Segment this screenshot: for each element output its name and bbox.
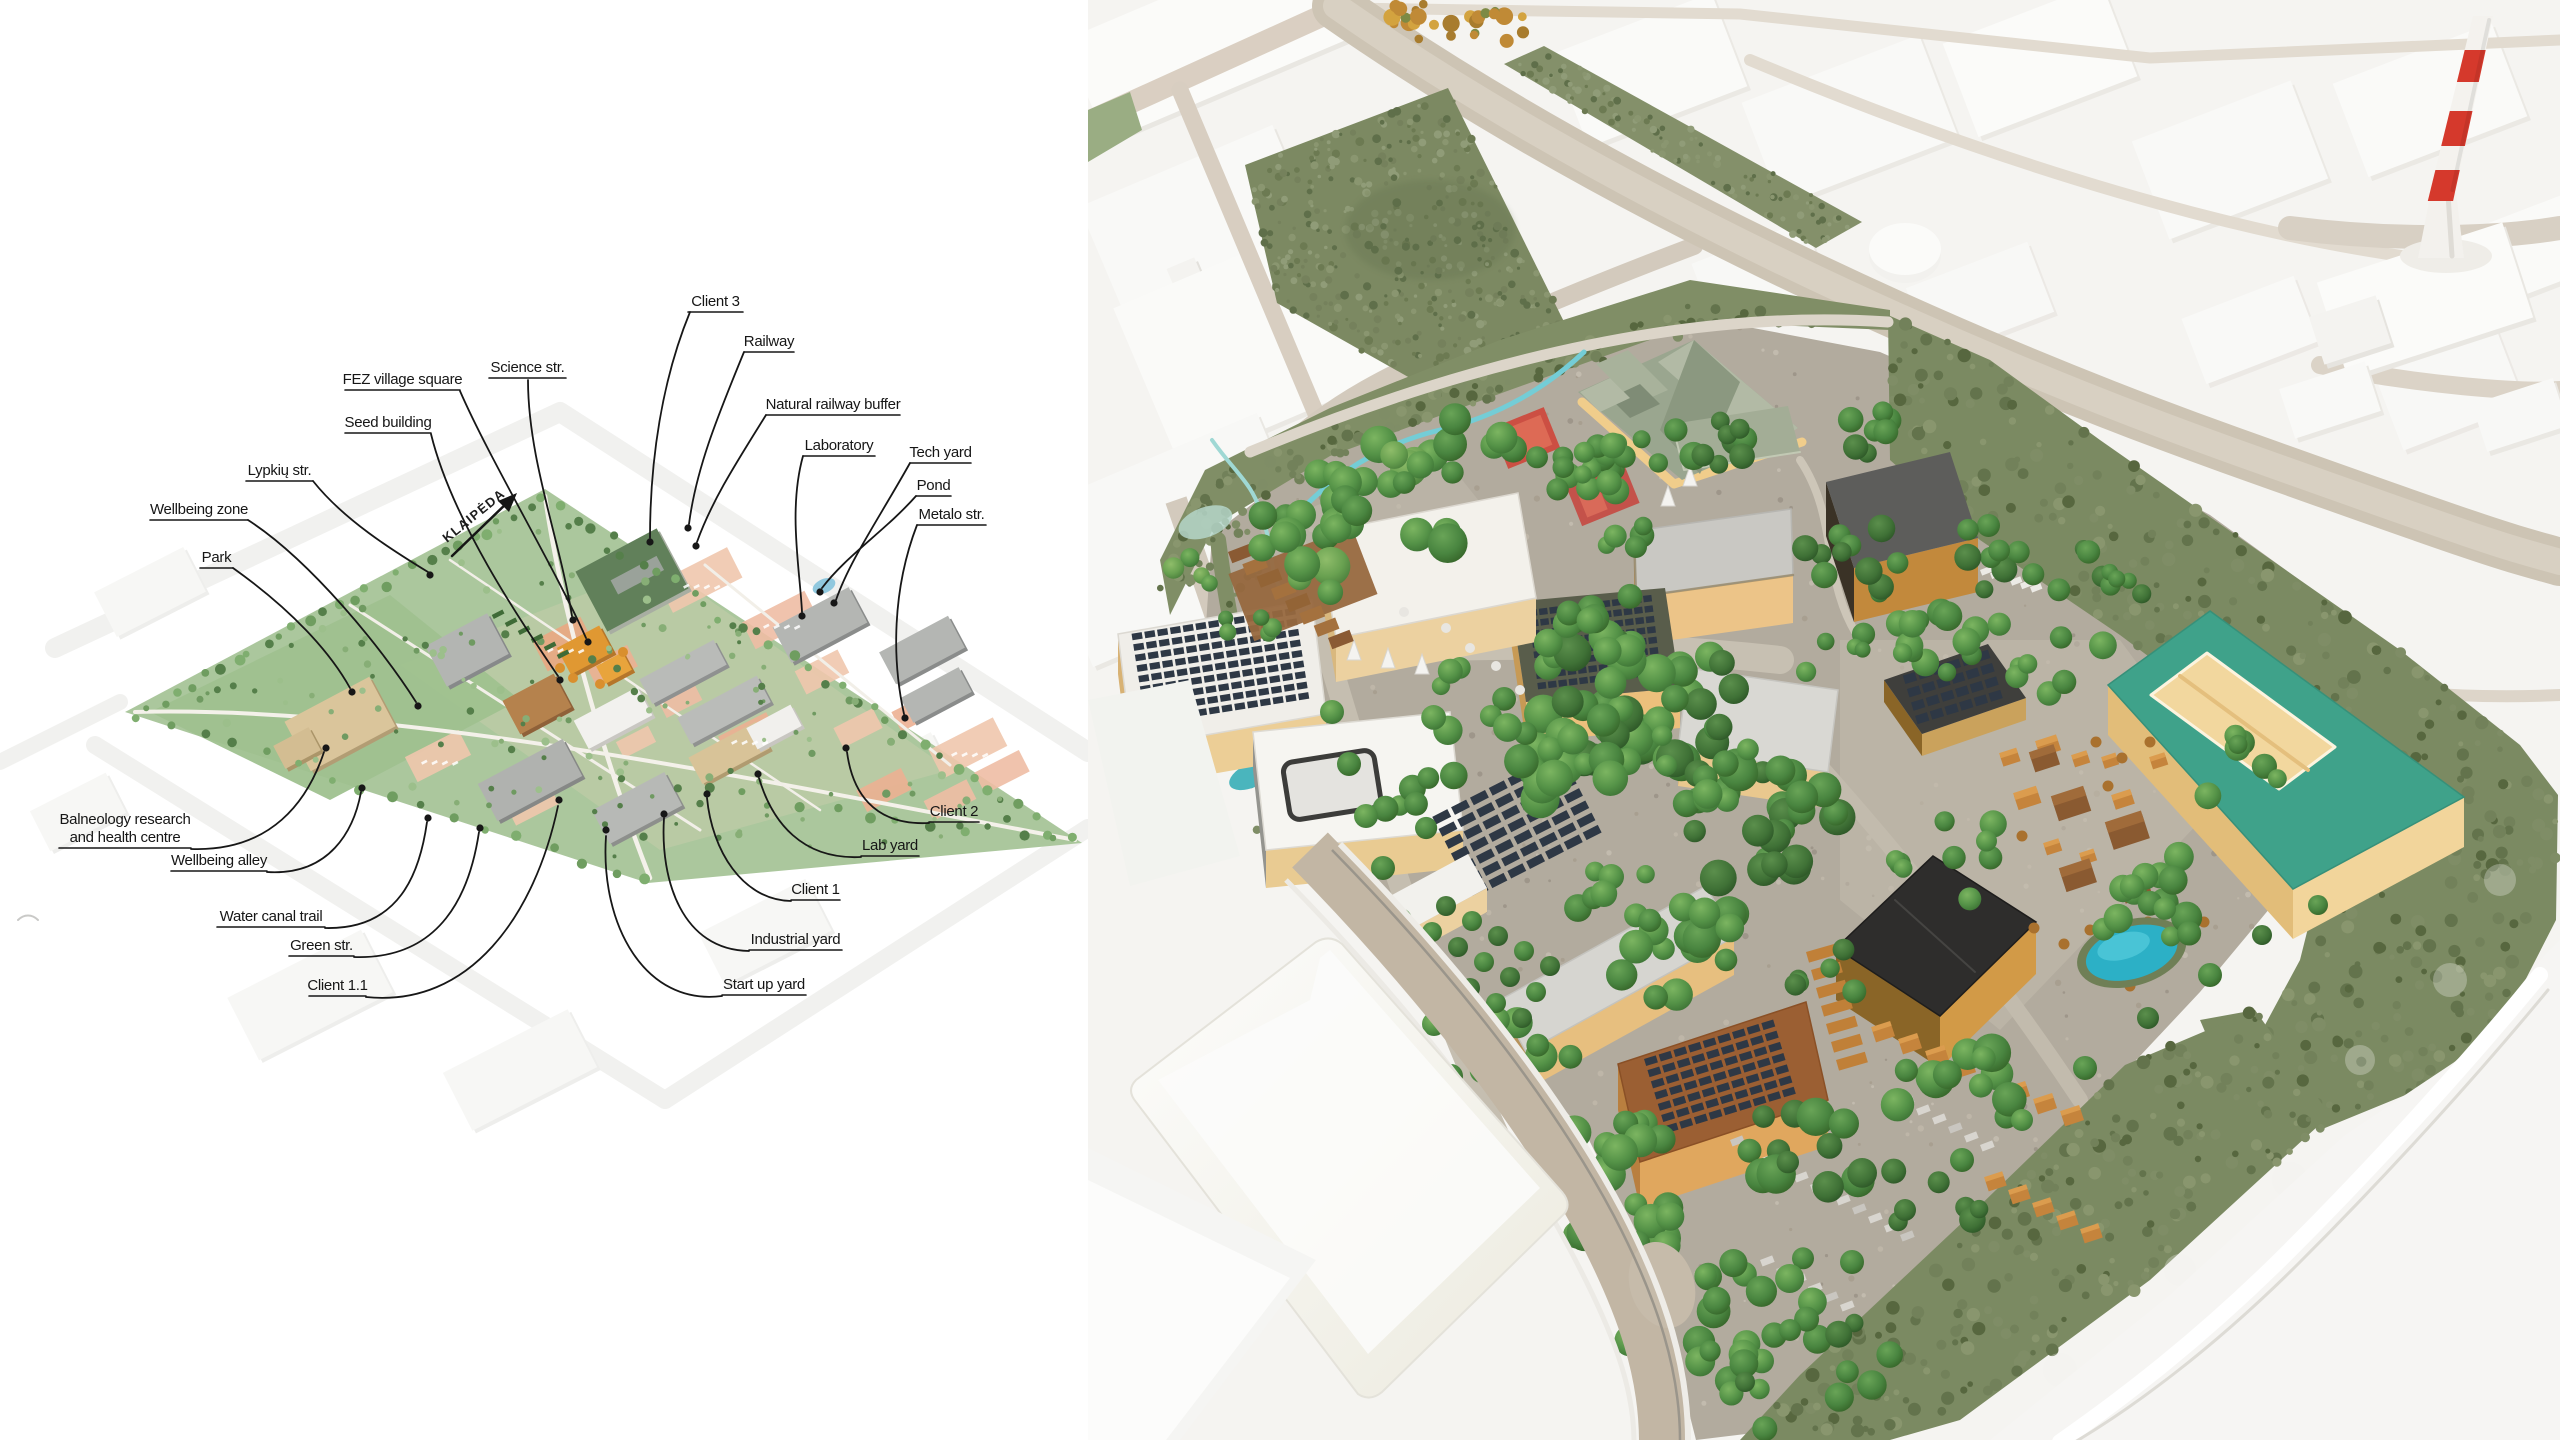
svg-text:Client 1: Client 1 [791,881,839,898]
svg-text:Water canal trail: Water canal trail [220,908,323,925]
svg-text:and health centre: and health centre [70,829,181,846]
svg-text:Lypkių str.: Lypkių str. [248,462,312,479]
svg-text:Client 3: Client 3 [691,293,739,310]
svg-text:Park: Park [202,549,232,566]
svg-text:Wellbeing alley: Wellbeing alley [171,852,268,869]
svg-text:Lab yard: Lab yard [862,837,918,854]
svg-text:Green str.: Green str. [290,937,353,954]
svg-text:Railway: Railway [744,333,795,350]
svg-text:Metalo str.: Metalo str. [919,506,985,523]
svg-text:FEZ village square: FEZ village square [343,371,463,388]
svg-text:Science str.: Science str. [491,359,565,376]
svg-text:Seed building: Seed building [344,414,431,431]
svg-text:Wellbeing zone: Wellbeing zone [150,501,248,518]
svg-text:Industrial yard: Industrial yard [751,931,841,948]
svg-text:Laboratory: Laboratory [805,437,875,454]
svg-text:Pond: Pond [917,477,951,494]
svg-text:Natural railway buffer: Natural railway buffer [766,396,901,413]
svg-text:Tech yard: Tech yard [909,444,971,461]
svg-text:Start up yard: Start up yard [723,976,805,993]
svg-text:Client 2: Client 2 [930,803,978,820]
svg-text:Client 1.1: Client 1.1 [307,977,367,994]
svg-text:Balneology research: Balneology research [59,811,190,828]
